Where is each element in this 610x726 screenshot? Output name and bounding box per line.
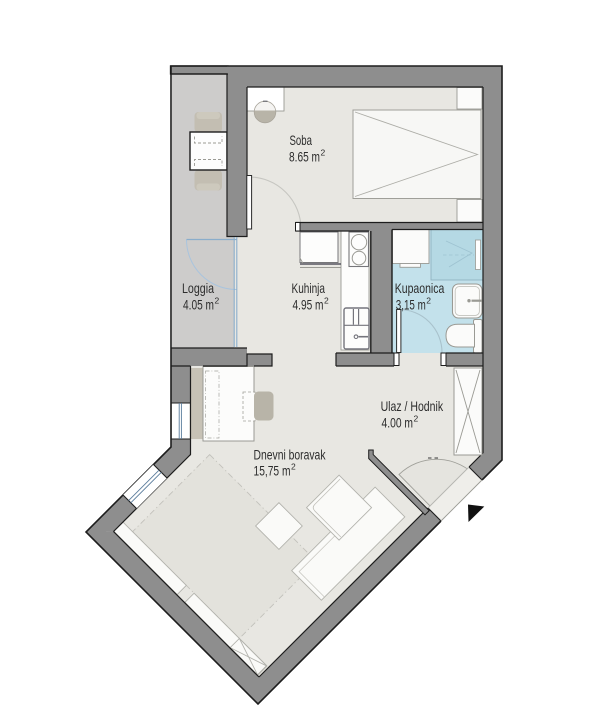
svg-text:15,75 m: 15,75 m bbox=[254, 463, 291, 479]
svg-text:Loggia: Loggia bbox=[182, 280, 214, 296]
svg-text:4.05 m: 4.05 m bbox=[183, 297, 214, 313]
svg-text:Soba: Soba bbox=[290, 132, 313, 148]
svg-text:2: 2 bbox=[215, 295, 220, 305]
svg-text:2: 2 bbox=[426, 295, 431, 305]
svg-text:4.00 m: 4.00 m bbox=[382, 415, 414, 431]
svg-text:3,15 m: 3,15 m bbox=[396, 297, 426, 313]
svg-text:4.95 m: 4.95 m bbox=[293, 297, 324, 313]
svg-text:2: 2 bbox=[291, 461, 296, 471]
svg-text:Dnevni boravak: Dnevni boravak bbox=[254, 447, 327, 463]
svg-text:Kupaonica: Kupaonica bbox=[395, 280, 445, 296]
svg-text:Ulaz / Hodnik: Ulaz / Hodnik bbox=[381, 398, 444, 414]
svg-text:2: 2 bbox=[321, 147, 326, 157]
svg-text:8.65 m: 8.65 m bbox=[289, 149, 320, 165]
svg-text:2: 2 bbox=[324, 295, 329, 305]
svg-text:Kuhinja: Kuhinja bbox=[292, 280, 326, 296]
svg-text:2: 2 bbox=[414, 413, 419, 423]
